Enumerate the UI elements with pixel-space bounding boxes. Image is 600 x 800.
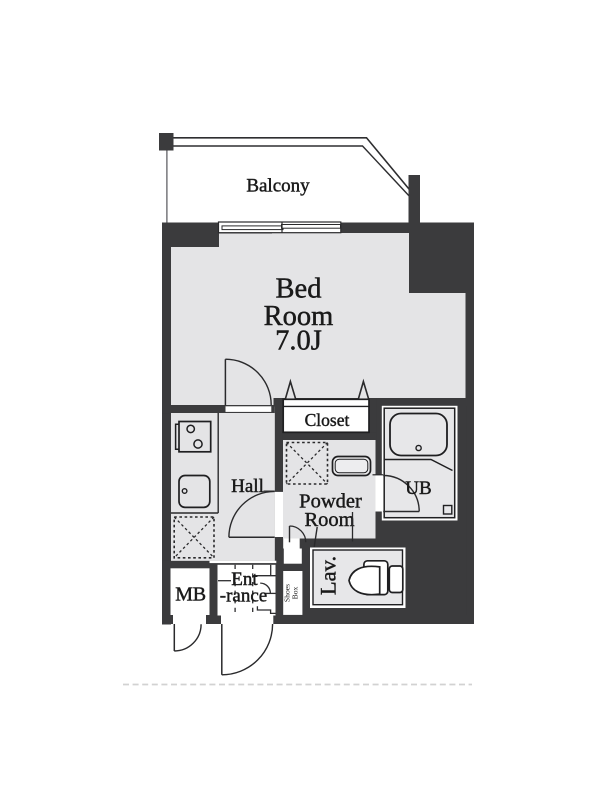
svg-text:UB: UB (405, 478, 431, 499)
svg-text:Balcony: Balcony (246, 176, 310, 197)
svg-text:Room: Room (304, 509, 354, 531)
svg-text:Lav.: Lav. (316, 556, 341, 595)
svg-text:7.0J: 7.0J (275, 326, 322, 357)
svg-text:MB: MB (175, 584, 206, 606)
svg-text:Bed: Bed (276, 274, 322, 305)
svg-text:-rance: -rance (220, 586, 267, 607)
svg-text:Box: Box (290, 586, 299, 599)
svg-text:Closet: Closet (305, 410, 350, 430)
